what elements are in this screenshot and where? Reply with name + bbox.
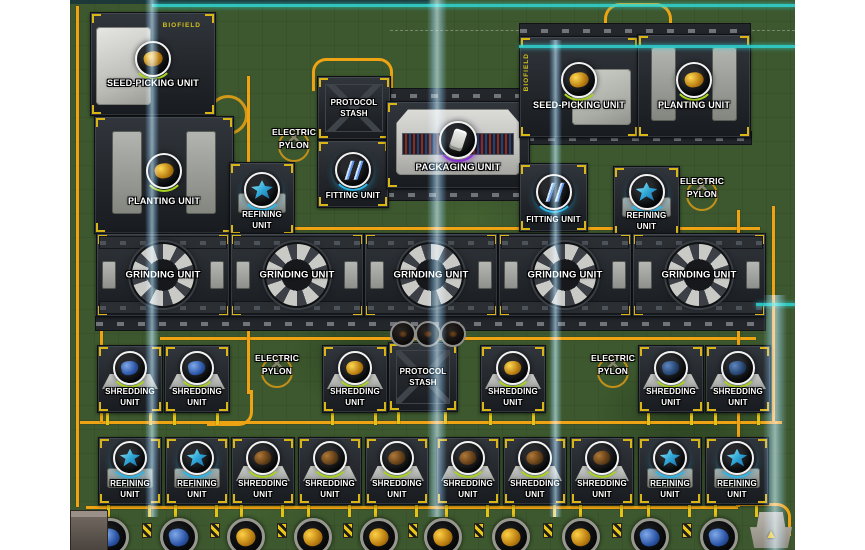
unit-label: PACKAGING UNIT [387, 162, 529, 173]
unit-refining[interactable]: REFININGUNIT [613, 166, 680, 237]
item-blob-icon [592, 449, 612, 467]
gold-item-icon [496, 351, 530, 385]
conveyor-path [772, 206, 775, 422]
pipe-leg [512, 503, 515, 517]
teal-item-icon [244, 172, 280, 208]
brown-item-icon [518, 441, 552, 475]
corner-bracket-icon [218, 439, 227, 448]
corner-bracket-icon [152, 347, 161, 356]
corner-bracket-icon [489, 439, 498, 448]
unit-fitting[interactable]: FITTING UNIT [317, 140, 389, 208]
unit-grinding[interactable]: GRINDING UNIT [498, 233, 632, 317]
pipe-leg [553, 503, 556, 517]
corner-bracket-icon [324, 347, 333, 356]
unit-label: SHREDDINGUNIT [504, 478, 566, 500]
unit-refining[interactable]: REFININGUNIT [638, 437, 702, 505]
item-blob-icon [345, 359, 365, 377]
belt-end-machine [70, 510, 108, 550]
loose-item-icon [415, 321, 441, 347]
pipe-leg [216, 411, 219, 425]
pipe-leg [647, 503, 650, 517]
corner-bracket-icon [92, 14, 101, 23]
teal-item-icon [720, 441, 754, 475]
unit-shredding[interactable]: SHREDDINGUNIT [97, 345, 163, 413]
corner-bracket-icon [758, 439, 767, 448]
field-boundary-line [152, 4, 795, 7]
gold-item-icon [135, 41, 171, 77]
pipe-leg [240, 503, 243, 517]
unit-seed-picking[interactable]: BIOFIELDSEED-PICKING UNIT [90, 12, 216, 116]
electric-pylon[interactable]: ✕ELECTRICPYLON [272, 126, 316, 152]
unit-label: SHREDDINGUNIT [299, 478, 361, 500]
unit-label: SEED-PICKING UNIT [91, 78, 215, 89]
corner-bracket-icon [223, 118, 232, 127]
blue-item-icon [180, 351, 214, 385]
unit-label: GRINDING UNIT [365, 270, 497, 281]
hazard-post-icon [543, 523, 553, 538]
belt-item-blue [160, 518, 198, 550]
belt-item-blob-icon [368, 526, 391, 548]
corner-bracket-icon [505, 439, 514, 448]
item-blob-icon [525, 449, 545, 467]
corner-bracket-icon [639, 36, 648, 45]
corner-bracket-icon [300, 439, 309, 448]
blue-item-icon [113, 351, 147, 385]
unit-label: REFININGUNIT [230, 209, 294, 231]
pipe-leg [173, 411, 176, 425]
pipe-leg [348, 503, 351, 517]
conveyor-path [86, 506, 738, 509]
corner-bracket-icon [167, 439, 176, 448]
unit-label: PROTOCOLSTASH [318, 97, 390, 119]
item-blob-icon [661, 359, 681, 377]
pipe-leg [620, 503, 623, 517]
corner-bracket-icon [693, 347, 702, 356]
corner-bracket-icon [96, 223, 105, 232]
biofield-badge: BIOFIELD [523, 53, 530, 91]
corner-bracket-icon [205, 105, 214, 114]
belt-item-blue [700, 518, 738, 550]
corner-bracket-icon [438, 439, 447, 448]
unit-label: SHREDDINGUNIT [639, 386, 703, 408]
pipe-leg [444, 410, 447, 424]
game-scene: BIOFIELDSEED-PICKING UNITPLANTING UNITRE… [70, 0, 795, 550]
item-blob-icon [153, 162, 174, 181]
unit-label: GRINDING UNIT [231, 270, 363, 281]
corner-bracket-icon [577, 165, 586, 174]
belt-item-gold [562, 518, 600, 550]
electric-pylon[interactable]: ✕ELECTRICPYLON [680, 175, 724, 201]
unit-grinding[interactable]: GRINDING UNIT [96, 233, 230, 317]
corner-bracket-icon [388, 103, 397, 112]
pipe-leg [532, 411, 535, 425]
corner-bracket-icon [233, 439, 242, 448]
pipe-leg [215, 503, 218, 517]
unit-label: GRINDING UNIT [97, 270, 229, 281]
pipe-leg [331, 411, 334, 425]
navy-item-icon [721, 351, 755, 385]
teal-item-icon [629, 174, 665, 210]
corner-bracket-icon [100, 439, 109, 448]
unit-label: SHREDDINGUNIT [437, 478, 499, 500]
pipe-leg [174, 503, 177, 517]
screenshot-root: BIOFIELDSEED-PICKING UNITPLANTING UNITRE… [0, 0, 865, 550]
belt-item-blob-icon [708, 526, 731, 548]
corner-bracket-icon [219, 347, 228, 356]
brown-item-icon [380, 441, 414, 475]
pipe-leg [445, 503, 448, 517]
warning-triangle-icon: ▲ [765, 527, 778, 540]
unit-grinding[interactable]: GRINDING UNIT [364, 233, 498, 317]
unit-fitting[interactable]: FITTING UNIT [519, 163, 588, 232]
unit-shredding[interactable]: SHREDDINGUNIT [322, 345, 388, 413]
unit-label: PLANTING UNIT [95, 196, 233, 207]
item-blob-icon [387, 449, 407, 467]
belt-item-gold [294, 518, 332, 550]
belt-item-blob-icon [235, 526, 258, 548]
corner-bracket-icon [521, 165, 530, 174]
hazard-post-icon [408, 523, 418, 538]
unit-label: SHREDDINGUNIT [706, 386, 770, 408]
corner-bracket-icon [535, 347, 544, 356]
corner-bracket-icon [740, 36, 749, 45]
unit-label: SHREDDINGUNIT [366, 478, 428, 500]
brown-item-icon [313, 441, 347, 475]
connector-rail [388, 88, 530, 102]
belt-item-gold [492, 518, 530, 550]
pipe-leg [755, 503, 758, 517]
pipe-leg [757, 411, 760, 425]
unit-refining[interactable]: REFININGUNIT [165, 437, 229, 505]
pipe-leg [149, 411, 152, 425]
unit-shredding[interactable]: SHREDDINGUNIT [231, 437, 295, 505]
pipe-leg [281, 503, 284, 517]
unit-shredding[interactable]: SHREDDINGUNIT [365, 437, 429, 505]
pipe-leg [307, 503, 310, 517]
unit-label: FITTING UNIT [318, 190, 388, 201]
unit-shredding[interactable]: SHREDDINGUNIT [705, 345, 771, 413]
unit-label: REFININGUNIT [166, 478, 228, 500]
connector-rail [386, 187, 530, 201]
pipe-leg [647, 411, 650, 425]
slash-item-icon [335, 152, 371, 188]
unit-grinding[interactable]: GRINDING UNIT [632, 233, 766, 317]
hazard-post-icon [277, 523, 287, 538]
corner-bracket-icon [231, 164, 240, 173]
item-blob-icon [503, 359, 523, 377]
electric-pylon[interactable]: ✕ELECTRICPYLON [591, 352, 635, 378]
unit-label: GRINDING UNIT [499, 270, 631, 281]
corner-bracket-icon [521, 127, 530, 136]
belt-item-blob-icon [639, 526, 662, 548]
belt-item-blob-icon [302, 526, 325, 548]
unit-label: REFININGUNIT [614, 210, 679, 232]
item-blob-icon [449, 128, 468, 152]
corner-bracket-icon [367, 439, 376, 448]
hazard-post-icon [210, 523, 220, 538]
corner-bracket-icon [640, 439, 649, 448]
unit-grinding[interactable]: GRINDING UNIT [230, 233, 364, 317]
item-blob-icon [343, 161, 364, 180]
unit-label: SHREDDINGUNIT [481, 386, 545, 408]
corner-bracket-icon [639, 127, 648, 136]
pipe-leg [148, 503, 151, 517]
conveyor-path [76, 6, 79, 507]
corner-bracket-icon [707, 439, 716, 448]
field-boundary-line [756, 303, 795, 306]
unit-shredding[interactable]: SHREDDINGUNIT [480, 345, 546, 413]
unit-shredding[interactable]: SHREDDINGUNIT [164, 345, 230, 413]
electric-pylon[interactable]: ✕ELECTRICPYLON [255, 352, 299, 378]
corner-bracket-icon [319, 142, 328, 151]
corner-bracket-icon [351, 439, 360, 448]
corner-bracket-icon [556, 439, 565, 448]
package-item-icon [439, 121, 477, 159]
unit-label: SHREDDINGUNIT [98, 386, 162, 408]
unit-stash[interactable]: PROTOCOLSTASH [317, 76, 391, 140]
item-blob-icon [120, 449, 140, 468]
belt-item-blob-icon [168, 526, 191, 548]
unit-label: SHREDDINGUNIT [165, 386, 229, 408]
pipe-leg [489, 411, 492, 425]
unit-planting[interactable]: PLANTING UNIT [637, 34, 751, 138]
item-blob-icon [253, 449, 273, 467]
unit-label: GRINDING UNIT [633, 270, 765, 281]
belt-item-gold [424, 518, 462, 550]
belt-item-blob-icon [432, 526, 455, 548]
loose-item-icon [440, 321, 466, 347]
hazard-post-icon [682, 523, 692, 538]
biofield-badge: BIOFIELD [163, 22, 201, 29]
corner-bracket-icon [284, 439, 293, 448]
corner-bracket-icon [740, 127, 749, 136]
unit-label: REFININGUNIT [639, 478, 701, 500]
corner-bracket-icon [707, 347, 716, 356]
item-blob-icon [683, 71, 704, 90]
belt-item-gold [360, 518, 398, 550]
pipe-leg [415, 503, 418, 517]
brown-item-icon [585, 441, 619, 475]
teal-item-icon [113, 441, 147, 475]
corner-bracket-icon [640, 347, 649, 356]
item-blob-icon [660, 449, 680, 468]
hazard-post-icon [142, 523, 152, 538]
gold-item-icon [146, 153, 182, 189]
pipe-leg [374, 411, 377, 425]
hazard-post-icon [474, 523, 484, 538]
item-blob-icon [543, 183, 564, 202]
corner-bracket-icon [205, 14, 214, 23]
pipe-leg [106, 411, 109, 425]
item-blob-icon [142, 50, 163, 69]
belt-item-blue [631, 518, 669, 550]
conveyor-path [80, 421, 782, 424]
unit-planting[interactable]: PLANTING UNIT [94, 116, 234, 234]
item-blob-icon [727, 449, 747, 468]
slash-item-icon [536, 174, 572, 210]
unit-label: FITTING UNIT [520, 214, 587, 225]
hazard-post-icon [343, 523, 353, 538]
pipe-leg [714, 411, 717, 425]
belt-item-blob-icon [570, 526, 593, 548]
teal-item-icon [653, 441, 687, 475]
pipe-leg [579, 503, 582, 517]
item-blob-icon [120, 359, 140, 377]
corner-bracket-icon [284, 164, 293, 173]
belt-item-blob-icon [500, 526, 523, 548]
navy-item-icon [654, 351, 688, 385]
unit-label: PROTOCOLSTASH [389, 366, 457, 388]
corner-bracket-icon [623, 439, 632, 448]
teal-item-icon [180, 441, 214, 475]
unit-label: SHREDDINGUNIT [232, 478, 294, 500]
unit-shredding[interactable]: SHREDDINGUNIT [570, 437, 634, 505]
unit-label: SHREDDINGUNIT [323, 386, 387, 408]
gold-item-icon [676, 62, 712, 98]
unit-label: SHREDDINGUNIT [571, 478, 633, 500]
corner-bracket-icon [628, 127, 637, 136]
corner-bracket-icon [418, 439, 427, 448]
corner-bracket-icon [482, 347, 491, 356]
unit-refining[interactable]: REFININGUNIT [705, 437, 769, 505]
item-blob-icon [320, 449, 340, 467]
field-boundary-line [519, 45, 795, 48]
item-blob-icon [568, 71, 589, 90]
unit-label: PLANTING UNIT [638, 100, 750, 111]
unit-label: REFININGUNIT [706, 478, 768, 500]
gold-item-icon [561, 62, 597, 98]
item-blob-icon [728, 359, 748, 377]
unit-label: SEED-PICKING UNIT [520, 100, 638, 111]
corner-bracket-icon [669, 168, 678, 177]
unit-refining[interactable]: REFININGUNIT [229, 162, 295, 236]
unit-label: REFININGUNIT [99, 478, 161, 500]
item-blob-icon [636, 182, 658, 202]
corner-bracket-icon [99, 347, 108, 356]
item-blob-icon [187, 449, 207, 468]
unit-shredding[interactable]: SHREDDINGUNIT [298, 437, 362, 505]
loose-item-icon [390, 321, 416, 347]
pipe-leg [688, 503, 691, 517]
corner-bracket-icon [572, 439, 581, 448]
pipe-leg [714, 503, 717, 517]
unit-seed-picking[interactable]: BIOFIELDSEED-PICKING UNIT [519, 36, 639, 138]
brown-item-icon [246, 441, 280, 475]
corner-bracket-icon [151, 439, 160, 448]
corner-bracket-icon [615, 168, 624, 177]
pipe-leg [374, 503, 377, 517]
corner-bracket-icon [388, 178, 397, 187]
corner-bracket-icon [92, 105, 101, 114]
hazard-post-icon [612, 523, 622, 538]
corner-bracket-icon [166, 347, 175, 356]
belt-item-gold [227, 518, 265, 550]
unit-stash[interactable]: PROTOCOLSTASH [388, 342, 458, 412]
pipe-leg [690, 411, 693, 425]
corner-bracket-icon [377, 347, 386, 356]
brown-item-icon [451, 441, 485, 475]
pipe-leg [397, 410, 400, 424]
corner-bracket-icon [691, 439, 700, 448]
corner-bracket-icon [760, 347, 769, 356]
item-blob-icon [187, 359, 207, 377]
unit-refining[interactable]: REFININGUNIT [98, 437, 162, 505]
item-blob-icon [251, 180, 273, 200]
gold-item-icon [338, 351, 372, 385]
item-blob-icon [458, 449, 478, 467]
unit-shredding[interactable]: SHREDDINGUNIT [503, 437, 567, 505]
pipe-leg [486, 503, 489, 517]
unit-shredding[interactable]: SHREDDINGUNIT [436, 437, 500, 505]
corner-bracket-icon [96, 118, 105, 127]
unit-shredding[interactable]: SHREDDINGUNIT [638, 345, 704, 413]
unit-packaging[interactable]: PACKAGING UNIT [386, 101, 530, 189]
